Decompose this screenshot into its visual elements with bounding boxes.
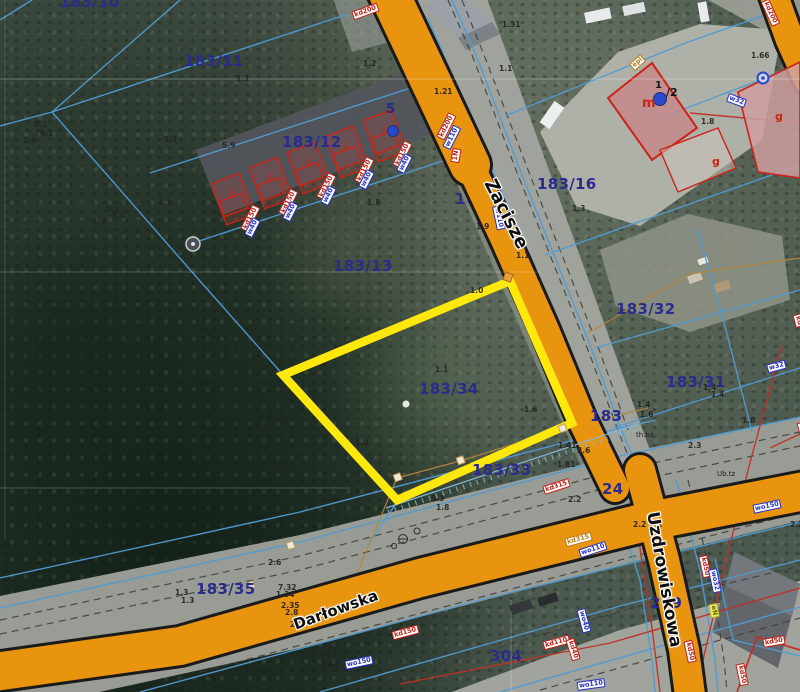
street-labels-layer: ZaciszeDarłowskaUzdrowiskowa (0, 0, 800, 692)
map-canvas[interactable]: 183/15 (0, 0, 800, 692)
street-label-darłowska: Darłowska (291, 586, 381, 633)
street-label-uzdrowiskowa: Uzdrowiskowa (642, 510, 686, 649)
street-label-zacisze: Zacisze (480, 176, 533, 253)
